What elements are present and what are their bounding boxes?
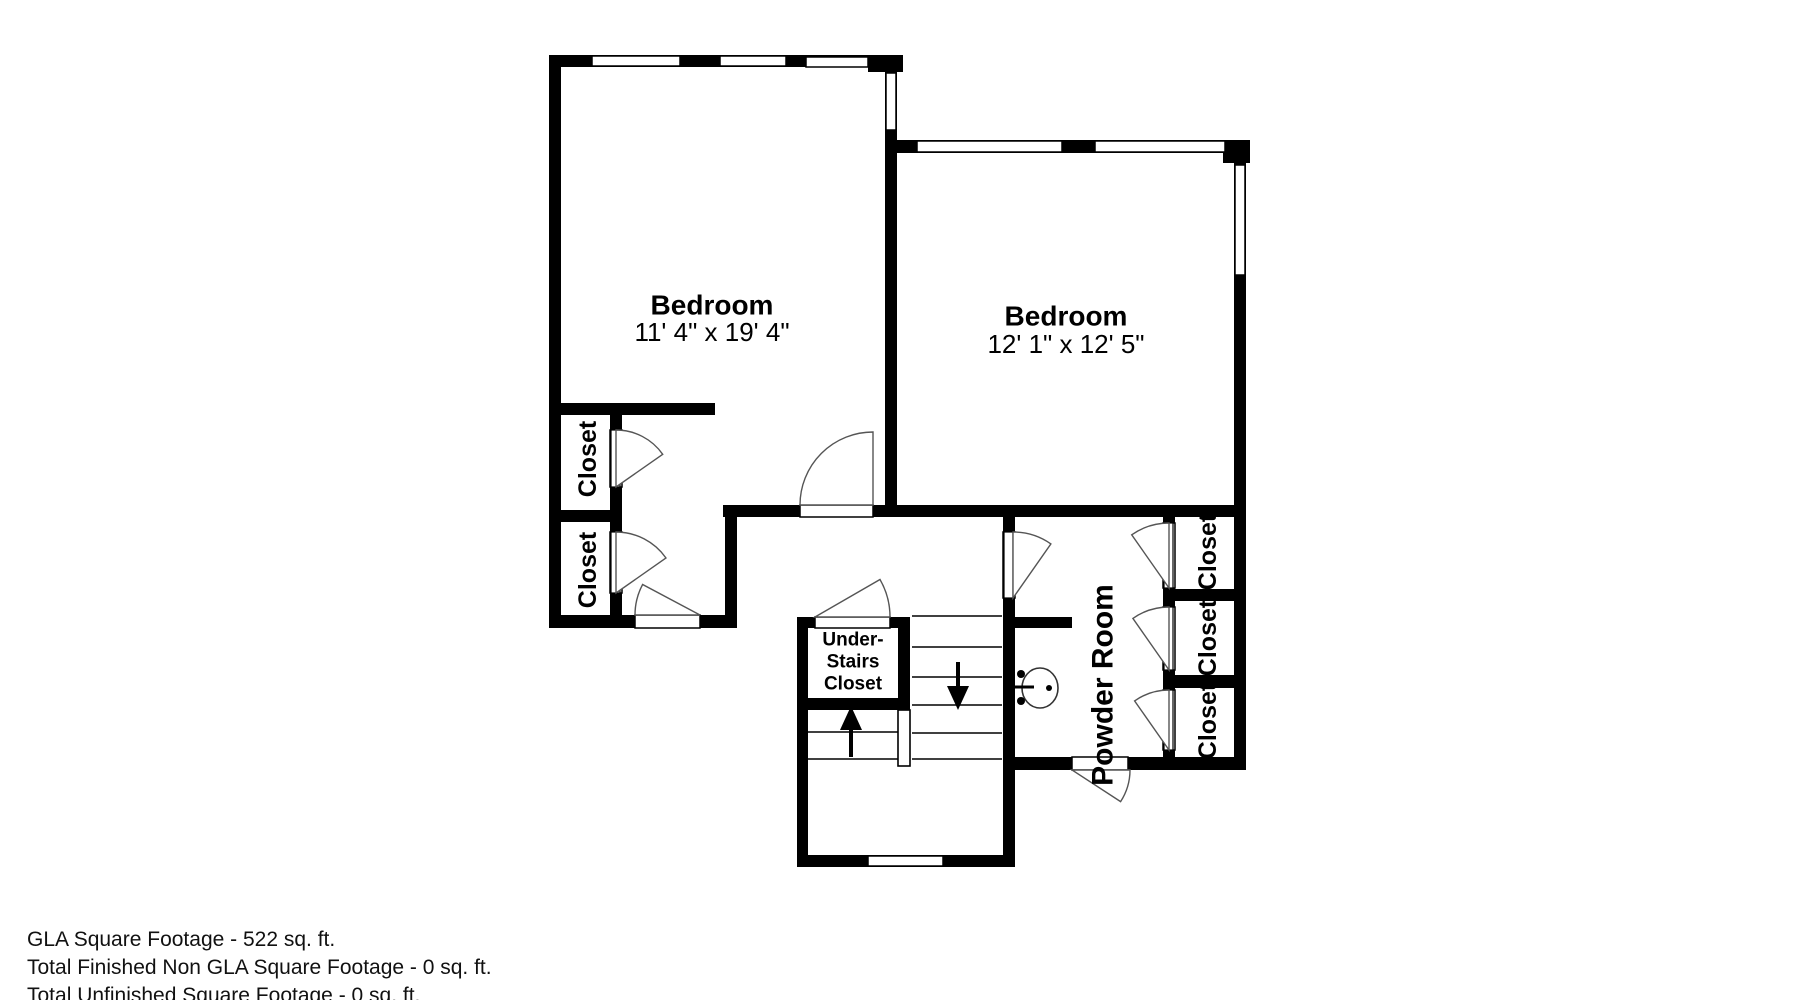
stairs-down-arrow-head [947, 686, 969, 710]
left-bedroom-dims: 11' 4" x 19' 4" [634, 317, 789, 347]
window-middle-wall [886, 73, 896, 130]
understairs-closet-label-line3: Closet [824, 674, 883, 695]
door-opening-vestibule [635, 615, 700, 628]
window-right-bedroom-b [1095, 141, 1225, 152]
door-arc-left-closet-1 [616, 430, 663, 487]
wall-vestibule-right [725, 505, 737, 628]
left-closet-2-label: Closet [574, 531, 602, 608]
unfinished-square-footage-line: Total Unfinished Square Footage - 0 sq. … [27, 982, 492, 1000]
window-right-bedroom-a [917, 141, 1062, 152]
window-left-bedroom-c [806, 57, 868, 67]
understairs-closet-label-line1: Under- [822, 630, 883, 651]
window-stair-landing [868, 856, 943, 866]
right-closet-2-label: Closet [1194, 599, 1222, 676]
door-opening-understairs-closet [815, 617, 890, 628]
window-left-bedroom-a [592, 56, 680, 66]
door-arc-left-closet-2 [616, 532, 666, 593]
wall-lower-section-left [797, 617, 808, 867]
window-right-wall [1235, 165, 1245, 275]
right-bedroom-name: Bedroom [1005, 301, 1128, 332]
left-closet-1-label: Closet [574, 420, 602, 497]
wall-left-closets-divider [549, 510, 622, 522]
sink-handle [1046, 685, 1052, 691]
door-arc-right-closet-2 [1133, 607, 1169, 670]
floorplan-page: Bedroom11' 4" x 19' 4"Bedroom12' 1" x 12… [0, 0, 1800, 1000]
powder-room-label: Powder Room [1087, 584, 1120, 786]
wall-left-exterior [549, 55, 561, 628]
door-opening-hall-bedroom [800, 505, 873, 517]
door-arc-right-closet-1 [1132, 523, 1169, 588]
sink-handle [1017, 697, 1025, 705]
right-closet-1-label: Closet [1194, 513, 1222, 590]
wall-sink-alcove [1015, 617, 1072, 628]
door-arc-hall-powder [1013, 532, 1051, 598]
door-arc-understairs-closet [815, 580, 890, 618]
gla-square-footage-line: GLA Square Footage - 522 sq. ft. [27, 926, 492, 954]
powder-room-sink [1013, 668, 1058, 708]
wall-understairs-closet-bottom [797, 698, 910, 710]
door-leaf-hall-powder [1004, 532, 1013, 598]
door-arc-hall-bedroom [800, 432, 873, 505]
wall-bottom-right [1128, 757, 1246, 770]
sink-handle [1017, 670, 1025, 678]
door-arc-right-closet-3 [1135, 690, 1169, 750]
stair-railing [898, 710, 910, 766]
square-footage-summary: GLA Square Footage - 522 sq. ft. Total F… [27, 926, 492, 1000]
door-arc-vestibule [635, 585, 700, 616]
stairs-down-arrow [947, 662, 969, 710]
windows-layer [592, 56, 1245, 866]
wall-understairs-closet-right [898, 617, 910, 710]
window-left-bedroom-b [720, 56, 786, 66]
wall-closet-strip-top [549, 403, 715, 415]
left-bedroom-name: Bedroom [651, 290, 774, 321]
understairs-closet-label-line2: Stairs [827, 652, 880, 673]
non-gla-square-footage-line: Total Finished Non GLA Square Footage - … [27, 954, 492, 982]
fixtures-layer [1013, 668, 1058, 708]
floorplan-drawing: Bedroom11' 4" x 19' 4"Bedroom12' 1" x 12… [0, 0, 1800, 1000]
right-closet-3-label: Closet [1194, 682, 1222, 759]
right-bedroom-dims: 12' 1" x 12' 5" [987, 329, 1144, 359]
